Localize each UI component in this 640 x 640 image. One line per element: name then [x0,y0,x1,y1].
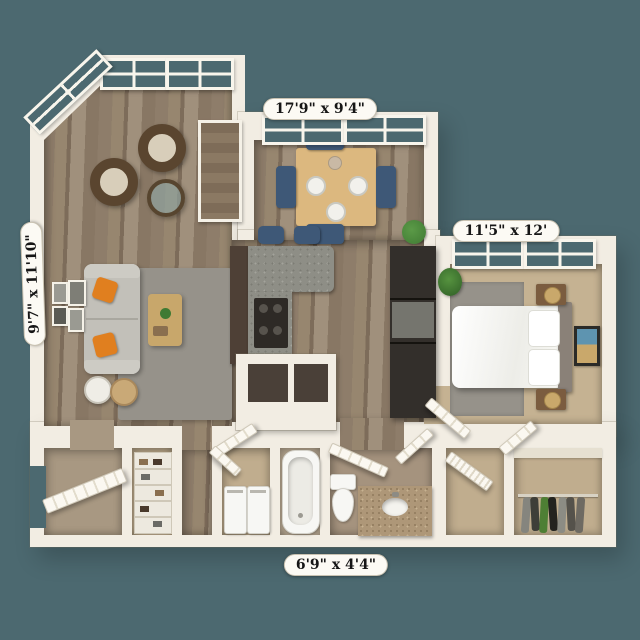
bed-pillow-2 [528,349,560,386]
floor-lamp [84,376,112,404]
shoe-shelf-line [135,468,171,470]
pantry-seam-2 [390,342,436,344]
wall-art-frame-1 [52,282,68,304]
dryer-control-panel [250,490,266,493]
bar-stool-1 [258,226,284,244]
nightstand-lamp-bottom [544,392,561,409]
shoe-shelf-unit [134,452,172,534]
hall-nook-floor [182,448,212,535]
living-window-2 [166,58,234,90]
shoe-shelf-line [135,500,171,502]
floor-plan-render: 17'9" x 9'4" 11'5" x 12' 9'7" x 11'10" 6… [0,0,640,640]
bedroom-window-1 [452,239,524,269]
coffee-table [148,294,182,346]
bar-stool-2 [294,226,320,244]
dining-chair-right [376,166,396,208]
passage-hall-to-bath [340,418,404,450]
sofa-armrest-top [84,264,140,278]
entry-mirror-closet-panel [198,120,242,222]
dimension-label-bathroom: 6'9" x 4'4" [284,554,388,576]
place-setting-3 [326,202,346,222]
nightstand-lamp-top [544,287,561,304]
shoe-shelf-line [135,516,171,518]
stove-burner-4 [273,326,282,335]
wicker-chair-1 [90,158,138,206]
shoes [141,474,150,480]
coffee-table-tray [153,326,168,336]
sofa-armrest-bottom [84,360,140,374]
wicker-chair-2 [138,124,186,172]
washer [224,486,247,534]
table-centerpiece [328,156,342,170]
bathroom-vanity [358,486,432,536]
dining-chair-left [276,166,296,208]
vanity-faucet [392,492,399,497]
stove-burner-3 [259,326,268,335]
sofa-cushion-seam [86,318,138,320]
shoes [153,521,162,527]
dimension-label-dining: 17'9" x 9'4" [263,98,377,120]
vanity-sink [382,498,408,516]
bedroom-wall-art [574,326,600,366]
washer-control-panel [227,490,243,493]
dimension-label-bedroom: 11'5" x 12' [453,220,560,242]
kitchen-cabinet-band [230,246,250,364]
passage-living-to-hall [182,420,212,450]
dimension-label-living: 9'7" x 11'10" [20,222,46,346]
shoes [140,506,149,512]
place-setting-2 [348,176,368,196]
shoe-shelf-line [135,484,171,486]
bed-headboard [558,302,572,392]
dryer [247,486,270,534]
place-setting-1 [306,176,326,196]
clothes-item [575,497,585,533]
half-wall-cabinet-panel-1 [248,364,288,402]
side-table [110,378,138,406]
wall-art-frame-3 [52,306,68,326]
bedroom-window-2 [524,239,596,269]
bathtub-drain [298,513,303,518]
coffee-table-plant [160,308,171,319]
glass-bistro-table [147,179,185,217]
bathtub [282,450,320,534]
stove-burner-1 [259,304,268,313]
living-window-1 [100,58,168,90]
wall-art-frame-4 [68,308,84,332]
walkin-shelf-band [514,448,602,458]
refrigerator-stainless-front [392,302,434,338]
wall-art-frame-2 [68,280,86,306]
kitchen-counter-top [248,246,334,292]
hanging-clothes [522,497,588,535]
passage-living-to-entry [70,420,114,450]
shoes [139,459,148,465]
shoes [155,490,164,496]
pantry-seam [390,298,436,300]
shoes [153,459,162,465]
bed-pillow-1 [528,310,560,347]
stove-burner-2 [273,304,282,313]
potted-plant-bar [402,220,426,244]
front-doorway-gap [30,466,46,528]
bedroom-plant [438,268,462,296]
half-wall-cabinet-panel-2 [294,364,328,402]
